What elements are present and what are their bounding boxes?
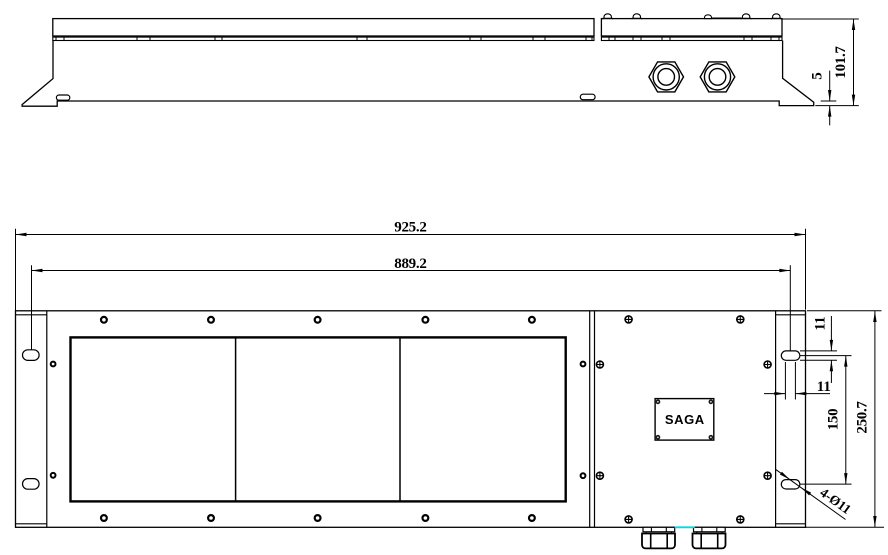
svg-text:101.7: 101.7: [833, 46, 849, 79]
svg-text:SAGA: SAGA: [665, 412, 705, 427]
svg-text:11: 11: [817, 379, 831, 395]
svg-text:250.7: 250.7: [855, 401, 871, 434]
svg-text:11: 11: [813, 316, 829, 330]
svg-text:889.2: 889.2: [394, 256, 426, 272]
svg-text:150: 150: [825, 409, 841, 431]
svg-text:5: 5: [810, 72, 826, 80]
svg-text:925.2: 925.2: [394, 219, 426, 235]
